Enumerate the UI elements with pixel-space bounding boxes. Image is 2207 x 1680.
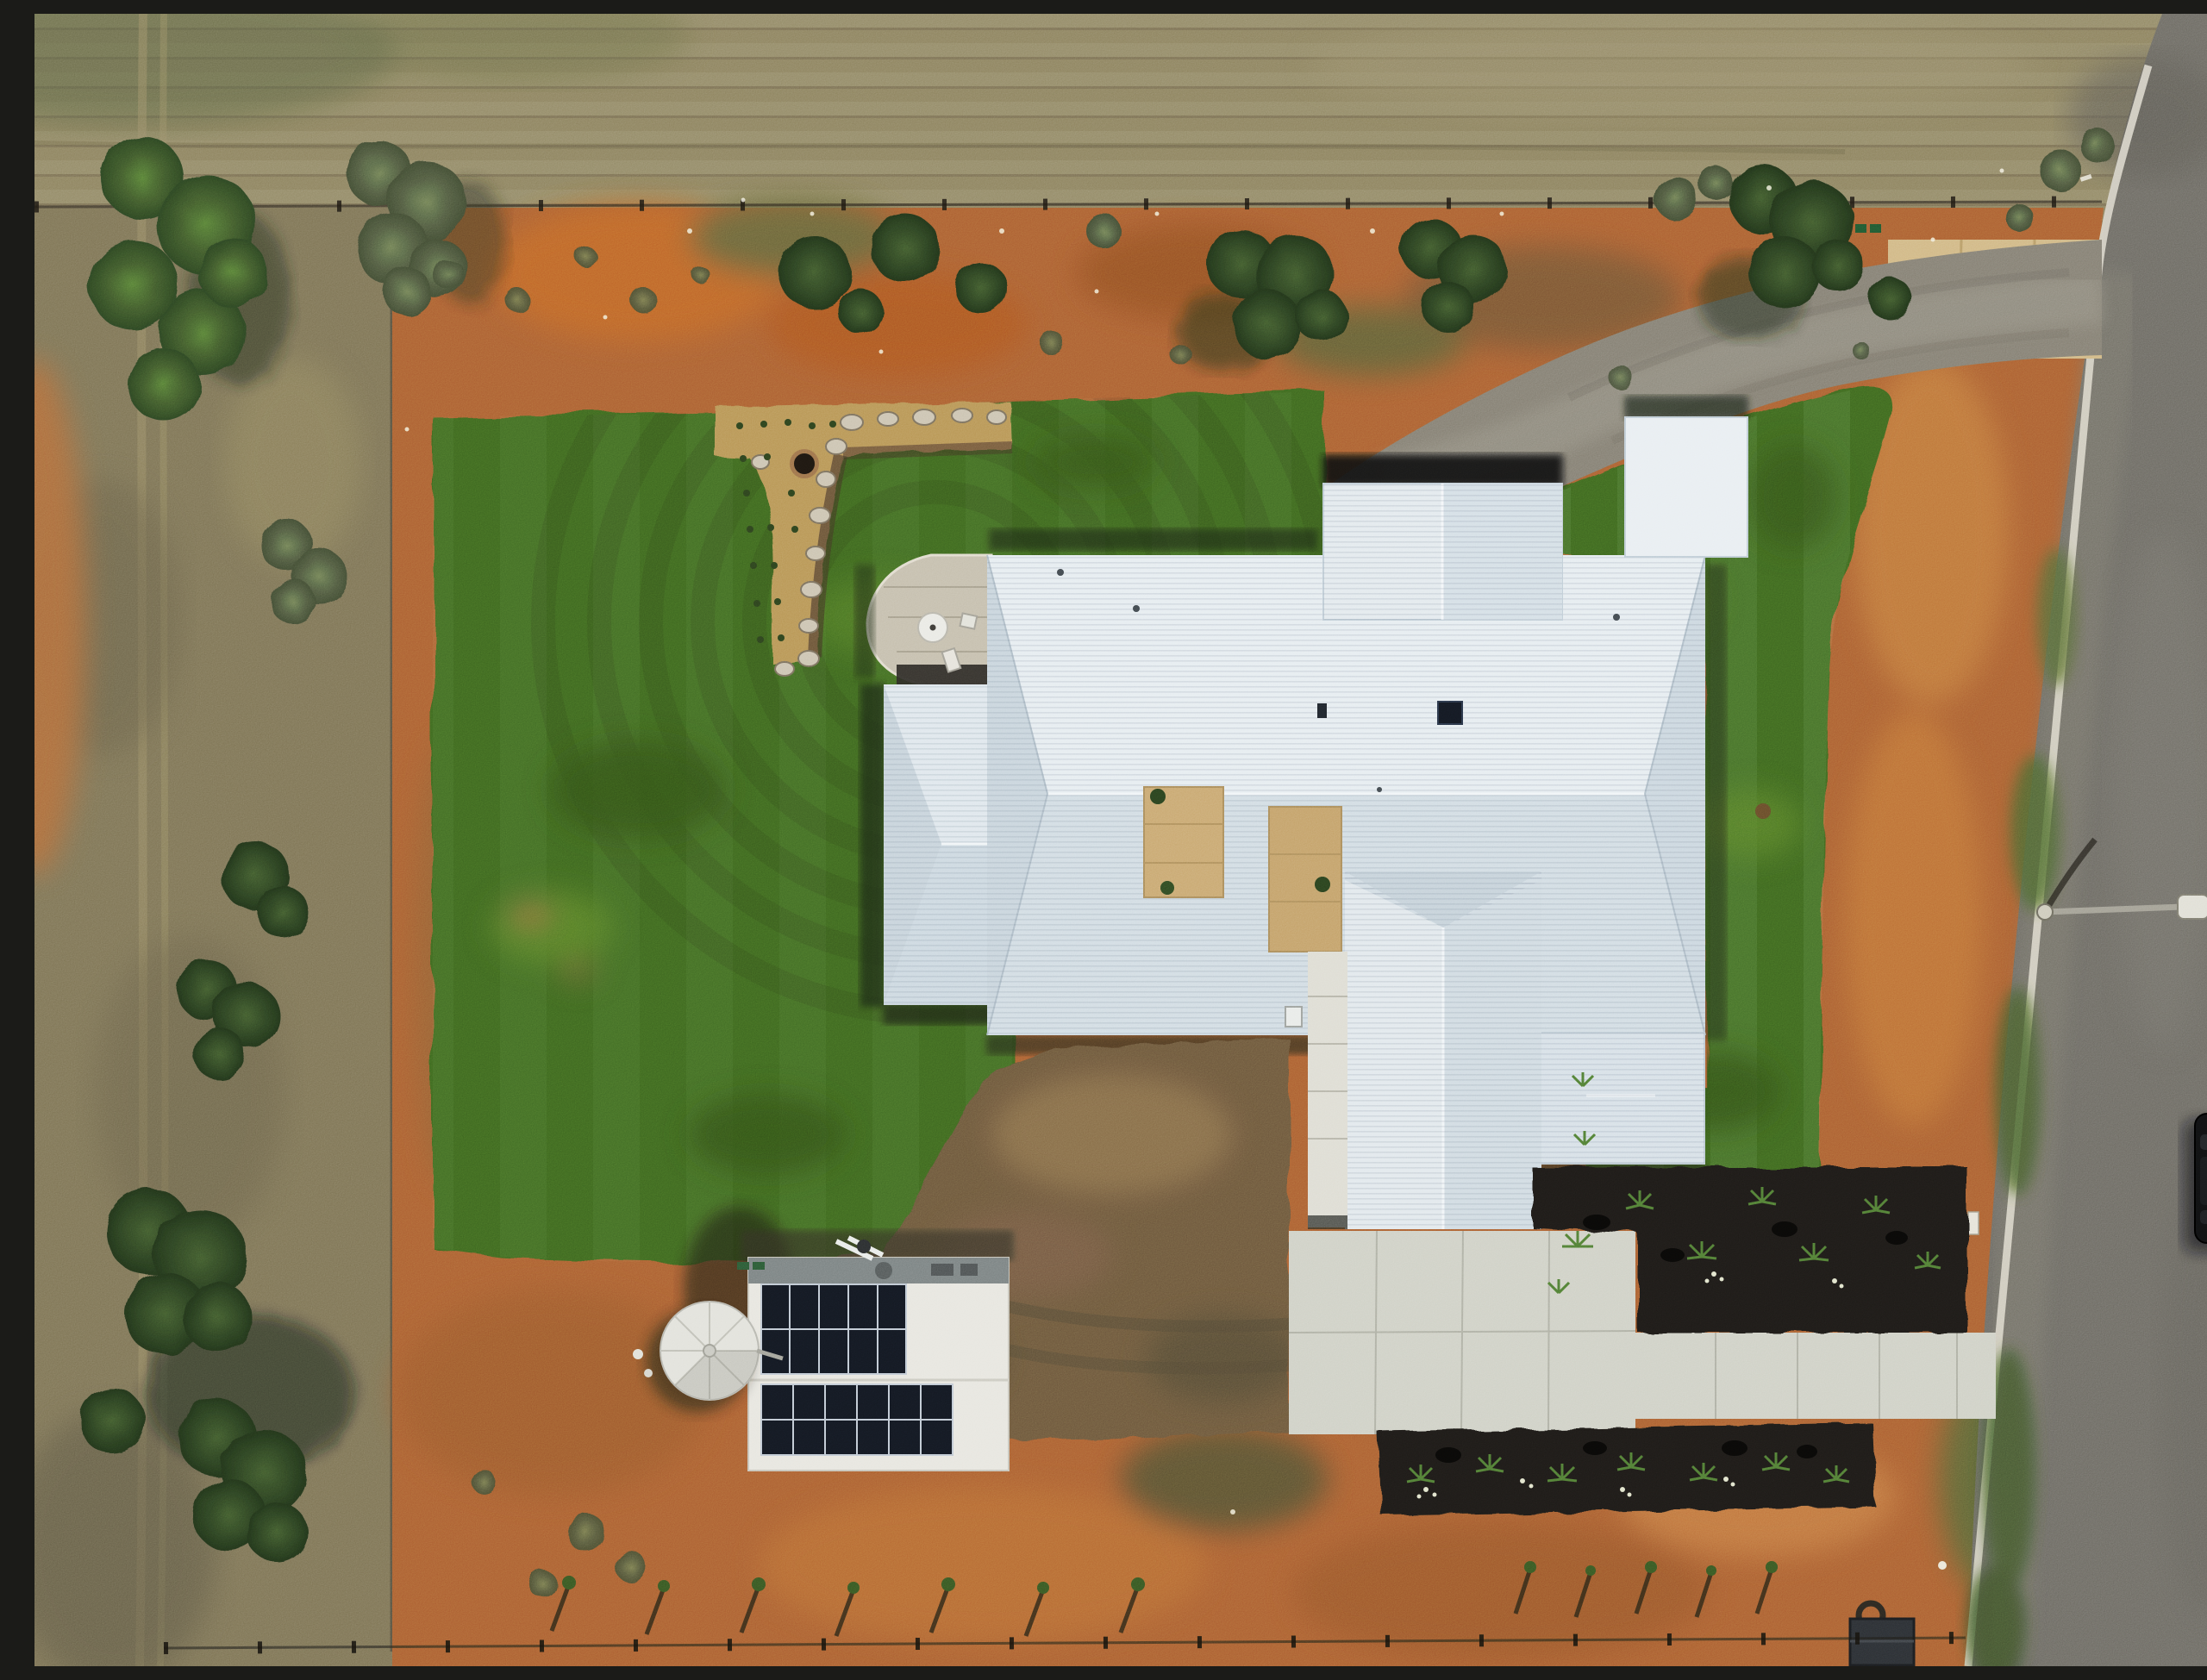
- aerial-photo: [34, 14, 2207, 1666]
- scene-canvas: [34, 14, 2207, 1666]
- photo-grain: [34, 14, 2207, 1666]
